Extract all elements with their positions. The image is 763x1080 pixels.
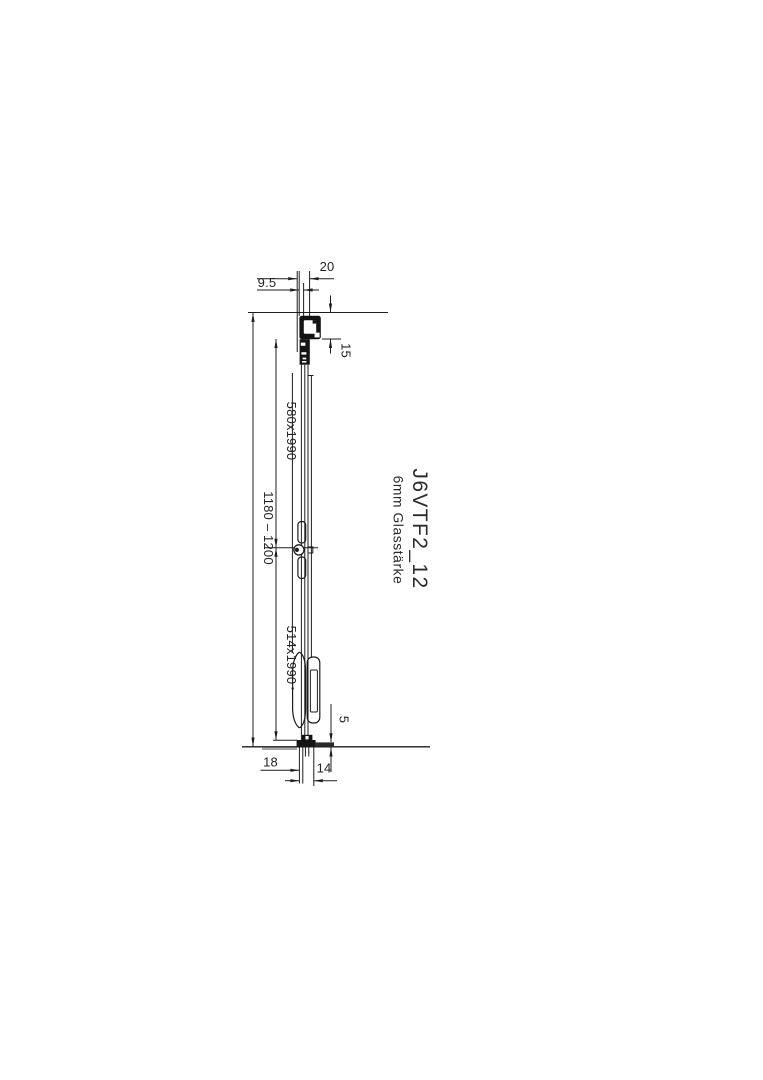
top-offset-label: 9.5 (258, 275, 277, 290)
overall-range-label: 1180 – 1200 (261, 491, 276, 565)
section-drawing: 1180 – 1200 580x1990 514x1990 20 9.5 (0, 0, 763, 1080)
dimension-sliding-panel: 514x1990 (273, 548, 299, 741)
bottom-right-label: 14 (317, 761, 332, 776)
floor-gap-label: 5 (337, 716, 352, 723)
dimension-top-width: 20 9.5 (257, 259, 334, 352)
bottom-left-label: 18 (263, 755, 278, 770)
floor-strip-left (262, 748, 297, 750)
dimension-bottom: 18 14 (261, 747, 338, 786)
dimension-fixed-panel: 580x1990 (274, 339, 299, 548)
fixed-panel-label: 580x1990 (284, 402, 299, 461)
dimension-floor-gap: 5 (329, 704, 351, 772)
drawing-titles: J6VTF2_12 6mm Glasstärke (391, 468, 432, 589)
dimension-overall: 1180 – 1200 (251, 313, 276, 747)
top-rail-profile (299, 316, 320, 365)
profile-height-label: 15 (339, 343, 354, 358)
top-width-label: 20 (320, 259, 335, 274)
floor-strip-right (316, 742, 334, 746)
dimension-profile-height: 15 (322, 296, 354, 358)
technical-drawing-page: 1180 – 1200 580x1990 514x1990 20 9.5 (0, 0, 763, 1080)
drawing-title: J6VTF2_12 (408, 468, 431, 589)
glass-thickness-label: 6mm Glasstärke (391, 476, 406, 585)
